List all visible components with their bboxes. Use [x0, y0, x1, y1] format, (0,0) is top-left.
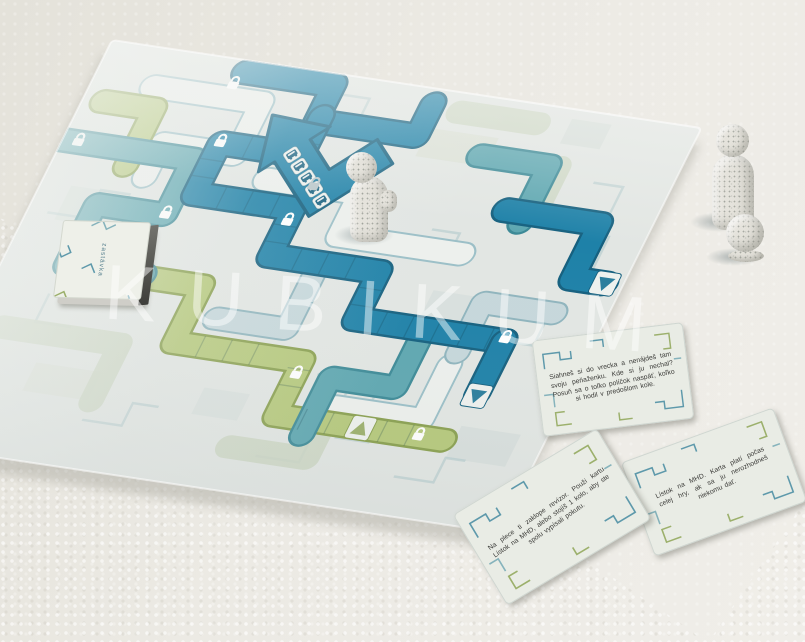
pawn-head: [346, 152, 377, 183]
small-pawn: [718, 212, 768, 266]
event-card: Siahneš si do vrecka a nenájdeš tam svoj…: [532, 322, 695, 437]
pawn-on-board: [340, 152, 402, 252]
photo-scene: zastávka Siahneš si do vrecka a nenájdeš…: [0, 0, 805, 642]
card-deck: zastávka: [53, 220, 151, 300]
pawn-arm: [380, 190, 397, 212]
small-pawn-head: [726, 214, 764, 252]
deck-top-card: zastávka: [53, 220, 151, 300]
tall-pawn-head: [716, 124, 749, 157]
